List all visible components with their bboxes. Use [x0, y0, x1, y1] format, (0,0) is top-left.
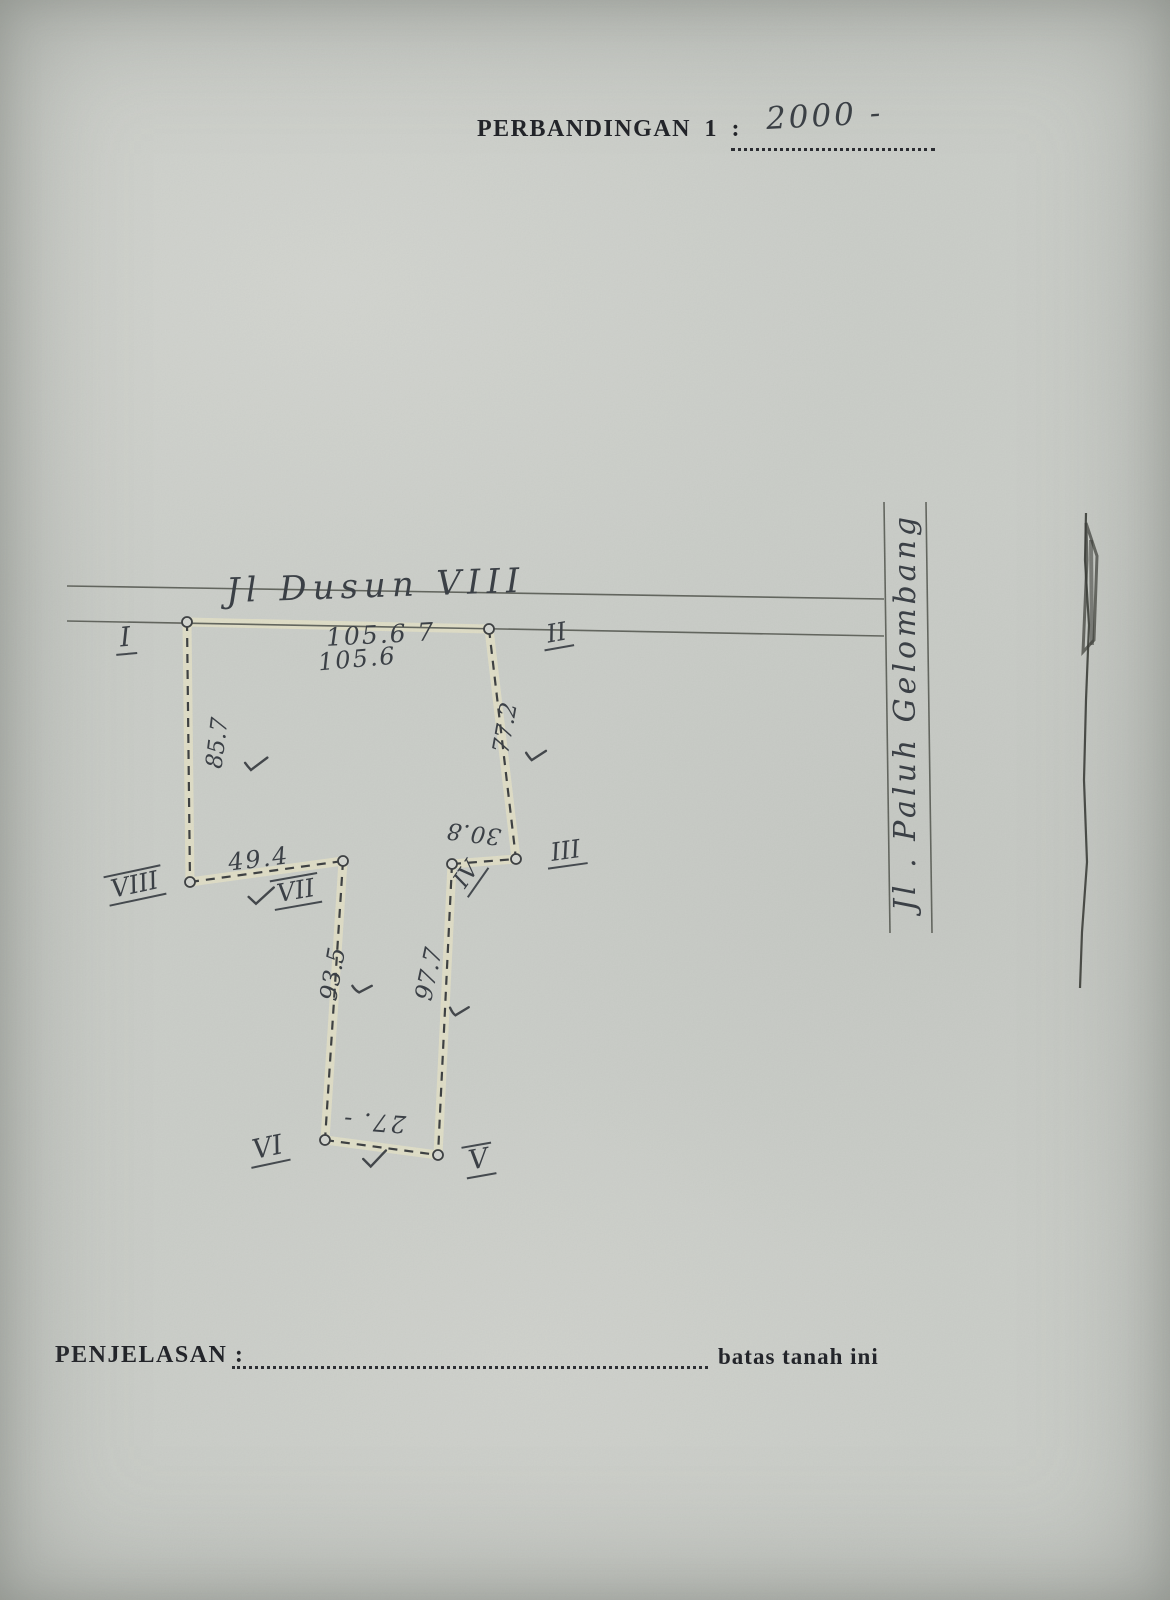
- vertex-VIII: [185, 877, 195, 887]
- check-mark-icon: [525, 747, 546, 763]
- check-mark-icon: [351, 982, 371, 995]
- check-mark-icon: [244, 754, 267, 772]
- scanned-survey-sheet: PERBANDINGAN 1 : 2000 -: [0, 0, 1170, 1600]
- vertex-label-III: III: [544, 835, 587, 869]
- measurement-south: 27. -: [341, 1106, 407, 1138]
- check-mark-icon: [248, 885, 274, 905]
- check-mark-icon: [449, 1003, 469, 1018]
- vertex-VI: [320, 1135, 330, 1145]
- vertex-label-II: II: [540, 618, 574, 652]
- explanation-label: PENJELASAN :: [55, 1342, 244, 1369]
- check-mark-icons: [244, 747, 546, 1168]
- explanation-dotted-line: [232, 1340, 708, 1369]
- vertex-label-V: V: [461, 1142, 496, 1180]
- right-road-name: Jl . Paluh Gelombang: [888, 472, 928, 952]
- vertex-III: [511, 854, 521, 864]
- vertex-VII: [338, 856, 348, 866]
- edge-VI-V: [325, 1140, 438, 1155]
- vertex-label-I: I: [114, 623, 137, 656]
- vertex-V: [433, 1150, 443, 1160]
- vertex-II: [484, 624, 494, 634]
- explanation-suffix: batas tanah ini: [718, 1344, 879, 1370]
- ink-smudge: [1080, 513, 1097, 988]
- vertex-I: [182, 617, 192, 627]
